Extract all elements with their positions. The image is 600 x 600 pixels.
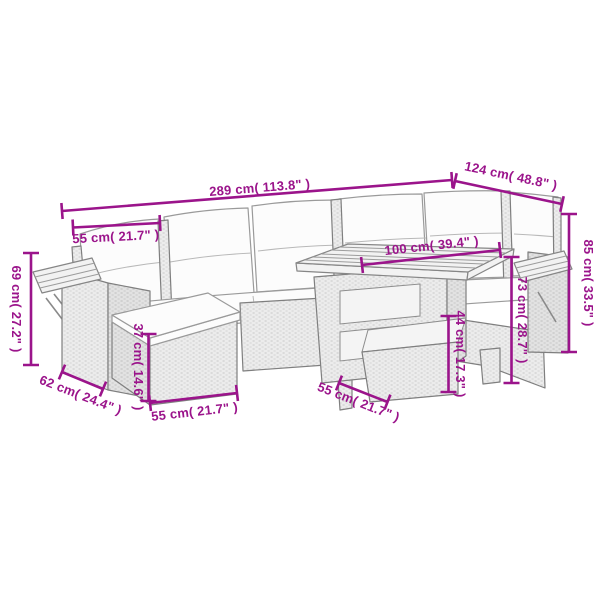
sofa-set-illustration [33,191,572,410]
dim-armrest-height-label: 73 cm( 28.7" ) [515,276,530,363]
left-armrest [62,270,108,390]
dim-ottoman-height-label: 37 cm( 14.6" ) [131,323,146,410]
dim-shelf-height-line [23,253,39,365]
sofa-dimension-diagram: 289 cm( 113.8" ) 124 cm( 48.8" ) 55 cm( … [0,0,600,600]
dim-stool-height-label: 44 cm( 17.3" ) [453,310,468,397]
sofa-leg [480,348,500,384]
dim-corner-depth-label: 124 cm( 48.8" ) [463,158,558,192]
dim-shelf-height-label: 69 cm( 27.2" ) [9,265,24,352]
dimension-diagram-canvas: 289 cm( 113.8" ) 124 cm( 48.8" ) 55 cm( … [0,0,600,600]
table-stool [362,318,466,402]
dim-shelf-height: 69 cm( 27.2" ) [9,253,39,365]
dim-total-height-label: 85 cm( 33.5" ) [581,239,596,326]
